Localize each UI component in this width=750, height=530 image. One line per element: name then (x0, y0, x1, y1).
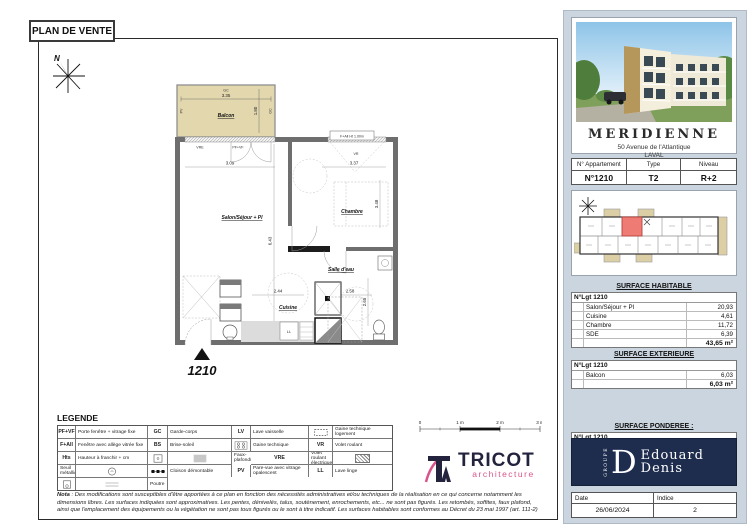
legend-label: Faux-plafond/soffite (232, 452, 251, 464)
legend-label: Fenêtre avec allège vitrée fixe (76, 439, 148, 452)
tricot-monogram-icon (424, 452, 454, 486)
poutre-icon (76, 478, 148, 490)
balcony-depth-dim: 1.80 (253, 106, 258, 115)
cloison-demontable-icon (148, 465, 168, 478)
balcony-gc-side-label: GC (269, 108, 273, 114)
surface-ponderee-title: SURFACE PONDEREE : (571, 423, 737, 430)
surface-exterieure-total: 6,03 m² (686, 380, 736, 388)
legend-label: Lave linge (333, 465, 392, 477)
scale-0: 0 (419, 420, 422, 425)
faux-plafond-icon (168, 452, 232, 465)
balcony-label: Balcon (218, 113, 235, 119)
legend-label: Gaine technique (251, 439, 309, 452)
apartment-info-table: N° Appartement Type Niveau N°1210 T2 R+2 (571, 158, 737, 185)
project-address: 50 Avenue de l'Atlantique (572, 144, 736, 152)
legend-table: PF+VF Porte fenêtre + vitrage fixe GC Ga… (57, 425, 393, 491)
sde-depth-dim: 2.65 (362, 297, 367, 306)
nota-text: Nota : Des modifications sont susceptibl… (57, 492, 543, 515)
key-plan-card (571, 190, 737, 276)
surface-row-label: Balcon (584, 371, 686, 379)
legend-label: Volet roulant électrique (309, 452, 333, 465)
nota-body: : Des modifications sont susceptibles d'… (57, 492, 538, 513)
developer-group-label: GROUPE (604, 447, 609, 477)
entrance-opening (185, 340, 211, 345)
indice-label: Indice (654, 493, 736, 504)
info-header-appartement: N° Appartement (572, 159, 627, 171)
salle-eau-label: Salle d'eau (328, 267, 354, 273)
surface-exterieure-table: N°Lgt 1210 Balcon 6,03 6,03 m² (571, 360, 737, 389)
legend-label: Lave vaisselle (251, 426, 309, 439)
legend-abbr: Hts (58, 452, 76, 465)
lot-number: N°Lgt 1210 (572, 293, 736, 303)
legend-label: Gaine technique logement (333, 426, 392, 439)
surface-exterieure-title: SURFACE EXTERIEURE (571, 351, 737, 358)
legend-abbr: PF+VF (58, 426, 76, 439)
date-value: 26/06/2024 (572, 504, 654, 517)
scale-bar: 0 1 m 2 m 3 m (418, 419, 542, 434)
surface-row-value: 11,72 (686, 321, 736, 329)
date-label: Date (572, 493, 654, 504)
legend-title: LEGENDE (57, 413, 393, 423)
legend-abbr: F+All (58, 439, 76, 452)
salon-chambre-wall (288, 142, 292, 226)
lave-linge-label: LL (287, 329, 292, 334)
surface-row-value: 6,39 (686, 330, 736, 338)
legend-label: Hauteur à franchir + cm (76, 452, 148, 465)
north-arrow-icon: N (46, 52, 90, 96)
side-panel: MERIDIENNE 50 Avenue de l'Atlantique LAV… (563, 10, 747, 524)
legend-label: Cloison démontable (168, 465, 232, 477)
nota-label: Nota (57, 492, 70, 498)
legend-label: Seuil métallique (58, 465, 76, 478)
info-header-niveau: Niveau (681, 159, 736, 171)
page-title-label: PLAN DE VENTE (32, 26, 112, 37)
floor-plan: GC 3.35 Balcon 1.80 GC PV VRE PF+VF F+Al… (128, 80, 418, 380)
info-value-niveau: R+2 (681, 171, 736, 184)
legend-label: Pare-vue avec vitrage opalescent (251, 465, 309, 477)
surface-habitable-table: N°Lgt 1210 Salon/Séjour + Pl 20,93 Cuisi… (571, 292, 737, 348)
surface-row-value: 4,61 (686, 312, 736, 320)
sde-wall-right (346, 247, 398, 251)
salon-label: Salon/Séjour + Pl (222, 215, 264, 221)
developer-logo: GROUPE D Edouard Denis (571, 438, 737, 486)
surface-habitable-total: 43,65 m² (686, 339, 736, 347)
building-photo (576, 22, 732, 122)
legend-label: Poutre (148, 478, 168, 490)
balcony-zone: GC 3.35 Balcon 1.80 GC PV (177, 85, 275, 137)
developer-initial: D (611, 446, 637, 478)
vre-label: VRE (196, 146, 204, 150)
apartment-number: 1210 (188, 363, 218, 378)
lot-number: N°Lgt 1210 (572, 361, 736, 371)
surface-tables: SURFACE HABITABLE N°Lgt 1210 Salon/Séjou… (571, 280, 737, 452)
plan-de-vente-sheet: PLAN DE VENTE N GC 3.35 Balcon (0, 0, 750, 530)
legend-abbr: GC (148, 426, 168, 439)
legend-label: Garde-corps (168, 426, 232, 439)
salon-window (185, 137, 275, 142)
key-plan-north-icon (579, 197, 597, 215)
fall-label: F+All Ht 1.00m (340, 135, 364, 139)
scale-2m: 2 m (496, 420, 504, 425)
chambre-label: Chambre (341, 209, 363, 215)
balcony-gc-label: GC (223, 89, 229, 93)
surface-row-label: Chambre (584, 321, 686, 329)
vr-label: VR (354, 152, 359, 156)
surface-row-value: 6,03 (686, 371, 736, 379)
legend-abbr: VR (309, 439, 333, 452)
surface-row-label: Cuisine (584, 312, 686, 320)
surface-row-value: 20,93 (686, 303, 736, 311)
legend-abbr: LL (309, 465, 333, 477)
info-header-type: Type (627, 159, 682, 171)
refrigerateur-icon (148, 452, 168, 465)
legend-abbr: PV (232, 465, 251, 477)
legend-label: Volet roulant (333, 439, 392, 452)
info-value-type: T2 (627, 171, 682, 184)
cuisine-label: Cuisine (279, 305, 297, 311)
cuisine-width-dim: 2.44 (274, 289, 283, 294)
architect-name: TRICOT (458, 452, 535, 469)
surface-row-label: Salon/Séjour + Pl (584, 303, 686, 311)
balcony-width-dim: 3.35 (222, 93, 231, 98)
legend: LEGENDE PF+VF Porte fenêtre + vitrage fi… (57, 413, 393, 491)
date-indice-table: Date Indice 26/06/2024 2 (571, 492, 737, 518)
surface-row-label: SDE (584, 330, 686, 338)
chaudiere-gaz-icon (58, 478, 76, 490)
salon-length-dim: 6.43 (268, 236, 273, 245)
gaine-technique-logement-icon (309, 426, 333, 439)
scale-3m: 3 m (536, 420, 542, 425)
four-cuisson-icon (232, 439, 251, 452)
scale-1m: 1 m (456, 420, 464, 425)
key-plan (574, 193, 734, 273)
legend-abbr: VRE (251, 452, 309, 465)
legend-label: Porte fenêtre + vitrage fixe (76, 426, 148, 439)
entrance-marker-icon (194, 348, 210, 360)
legend-label: Brise-soleil (168, 439, 232, 452)
pfvf-label: PF+VF (232, 146, 244, 150)
architect-logo: TRICOT architecture (424, 452, 544, 486)
balcony-pv-label: PV (180, 108, 184, 113)
legend-abbr: LV (232, 426, 251, 439)
chambre-window-dim: 3.37 (350, 161, 359, 166)
page-title: PLAN DE VENTE (29, 20, 115, 42)
seuil-metallique-icon (333, 452, 392, 465)
project-card: MERIDIENNE 50 Avenue de l'Atlantique LAV… (571, 17, 737, 154)
project-name: MERIDIENNE (572, 127, 736, 142)
indice-value: 2 (654, 504, 736, 517)
surface-habitable-title: SURFACE HABITABLE (571, 283, 737, 290)
highlighted-unit (622, 217, 642, 236)
north-label: N (54, 54, 60, 63)
developer-name-line2: Denis (641, 462, 704, 475)
salon-window-dim: 3.09 (226, 161, 235, 166)
chambre-depth-dim: 3.48 (374, 199, 379, 208)
info-value-appartement: N°1210 (572, 171, 627, 184)
ballon-eau-chaude-icon (76, 465, 148, 478)
legend-abbr: BS (148, 439, 168, 452)
